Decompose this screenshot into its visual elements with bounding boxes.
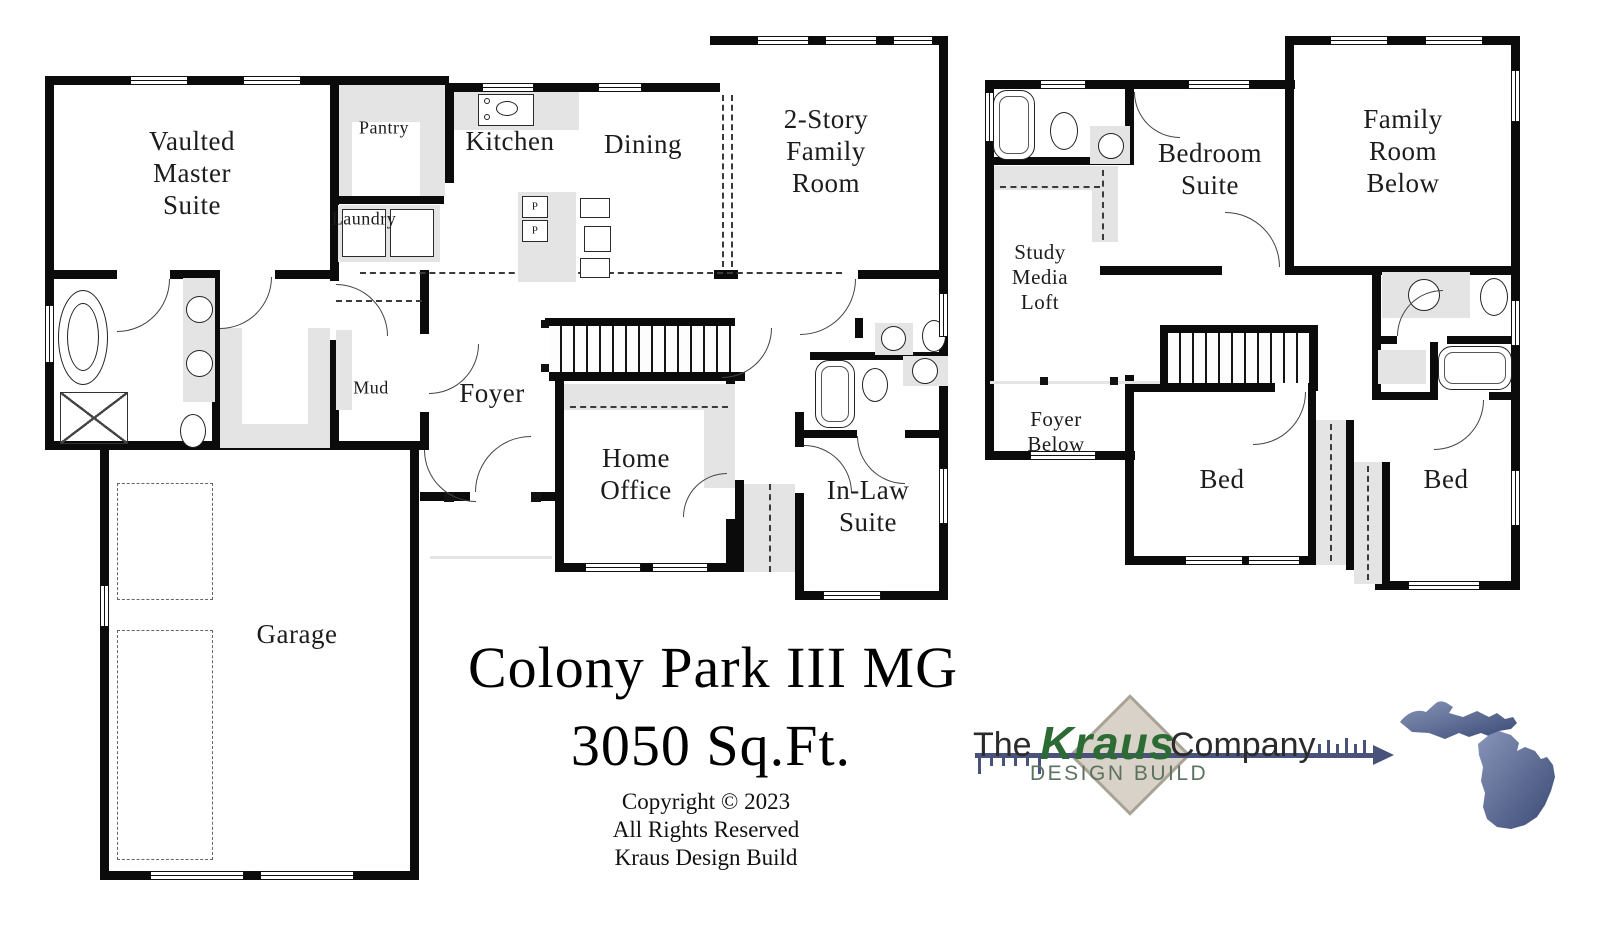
logo-prefix: The bbox=[973, 726, 1032, 765]
floor-plan-sheet: Vaulted Master Suite Pantry Kitchen Dini… bbox=[0, 0, 1604, 936]
ruler-tick bbox=[1354, 744, 1357, 753]
michigan-state-icon bbox=[1392, 672, 1592, 882]
logo-suffix: Company bbox=[1170, 726, 1316, 765]
ruler-tick bbox=[1363, 740, 1366, 753]
ruler-tick bbox=[1318, 744, 1321, 753]
kraus-logo: The Kraus Company DESIGN BUILD bbox=[0, 0, 1604, 936]
ruler-tick bbox=[1327, 740, 1330, 753]
ruler-tick bbox=[1336, 744, 1339, 753]
ruler-tick bbox=[1345, 738, 1348, 753]
logo-arrow-icon bbox=[1373, 745, 1394, 765]
logo-tagline: DESIGN BUILD bbox=[1030, 762, 1208, 786]
